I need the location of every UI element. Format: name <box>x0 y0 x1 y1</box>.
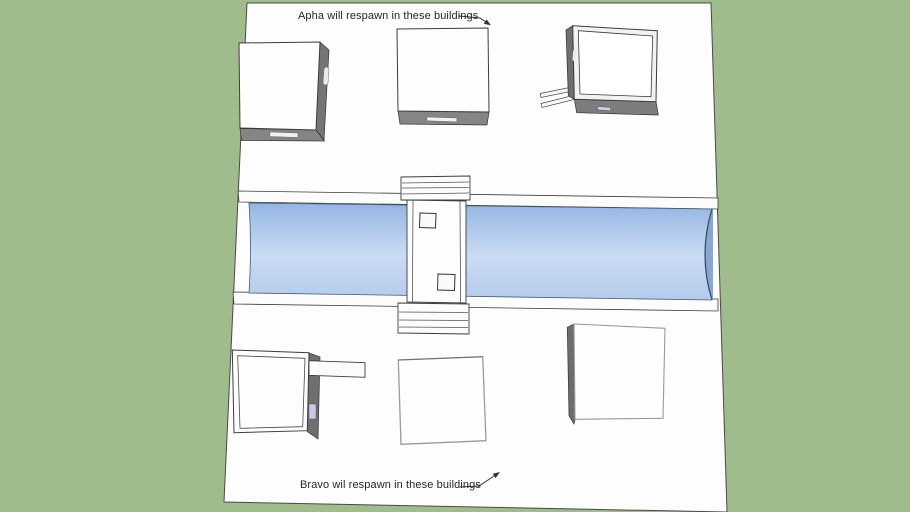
bravo-annotation-label: Bravo wil respawn in these buildings <box>300 479 481 491</box>
bridge-platform <box>407 200 466 303</box>
alpha-building-2-door-slit <box>427 117 457 122</box>
canal-water[interactable] <box>249 203 712 300</box>
alpha-building-1-roof <box>239 42 320 130</box>
alpha-building-1[interactable] <box>239 42 329 141</box>
alpha-building-1-door-slit <box>270 132 298 138</box>
alpha-building-2-roof <box>397 28 489 112</box>
alpha-building-2[interactable] <box>397 28 489 125</box>
bravo-building-1-roof <box>232 350 309 433</box>
model-scene <box>0 0 910 512</box>
bravo-building-3-roof <box>574 324 665 419</box>
alpha-building-3[interactable] <box>566 26 658 115</box>
alpha-annotation-label: Apha will respawn in these buildings <box>298 10 478 22</box>
bravo-building-3[interactable] <box>567 324 665 424</box>
bravo-building-2[interactable] <box>398 357 486 445</box>
alpha-building-3-door-slit <box>598 107 611 111</box>
alpha-building-1-window-slit <box>323 67 329 85</box>
bridge-hatch-2 <box>438 274 456 291</box>
bravo-building-1-window <box>309 404 316 419</box>
bravo-building-1-walkway <box>309 361 365 378</box>
bridge-hatch-1 <box>420 213 437 228</box>
bridge-bottom-stairs <box>398 303 469 334</box>
alpha-building-3-window-slit <box>572 50 576 61</box>
bridge[interactable] <box>398 176 470 334</box>
sketchup-viewport[interactable]: Apha will respawn in these buildings Bra… <box>0 0 910 512</box>
alpha-building-3-inner-floor <box>578 31 652 97</box>
bravo-building-2-roof <box>398 357 486 445</box>
